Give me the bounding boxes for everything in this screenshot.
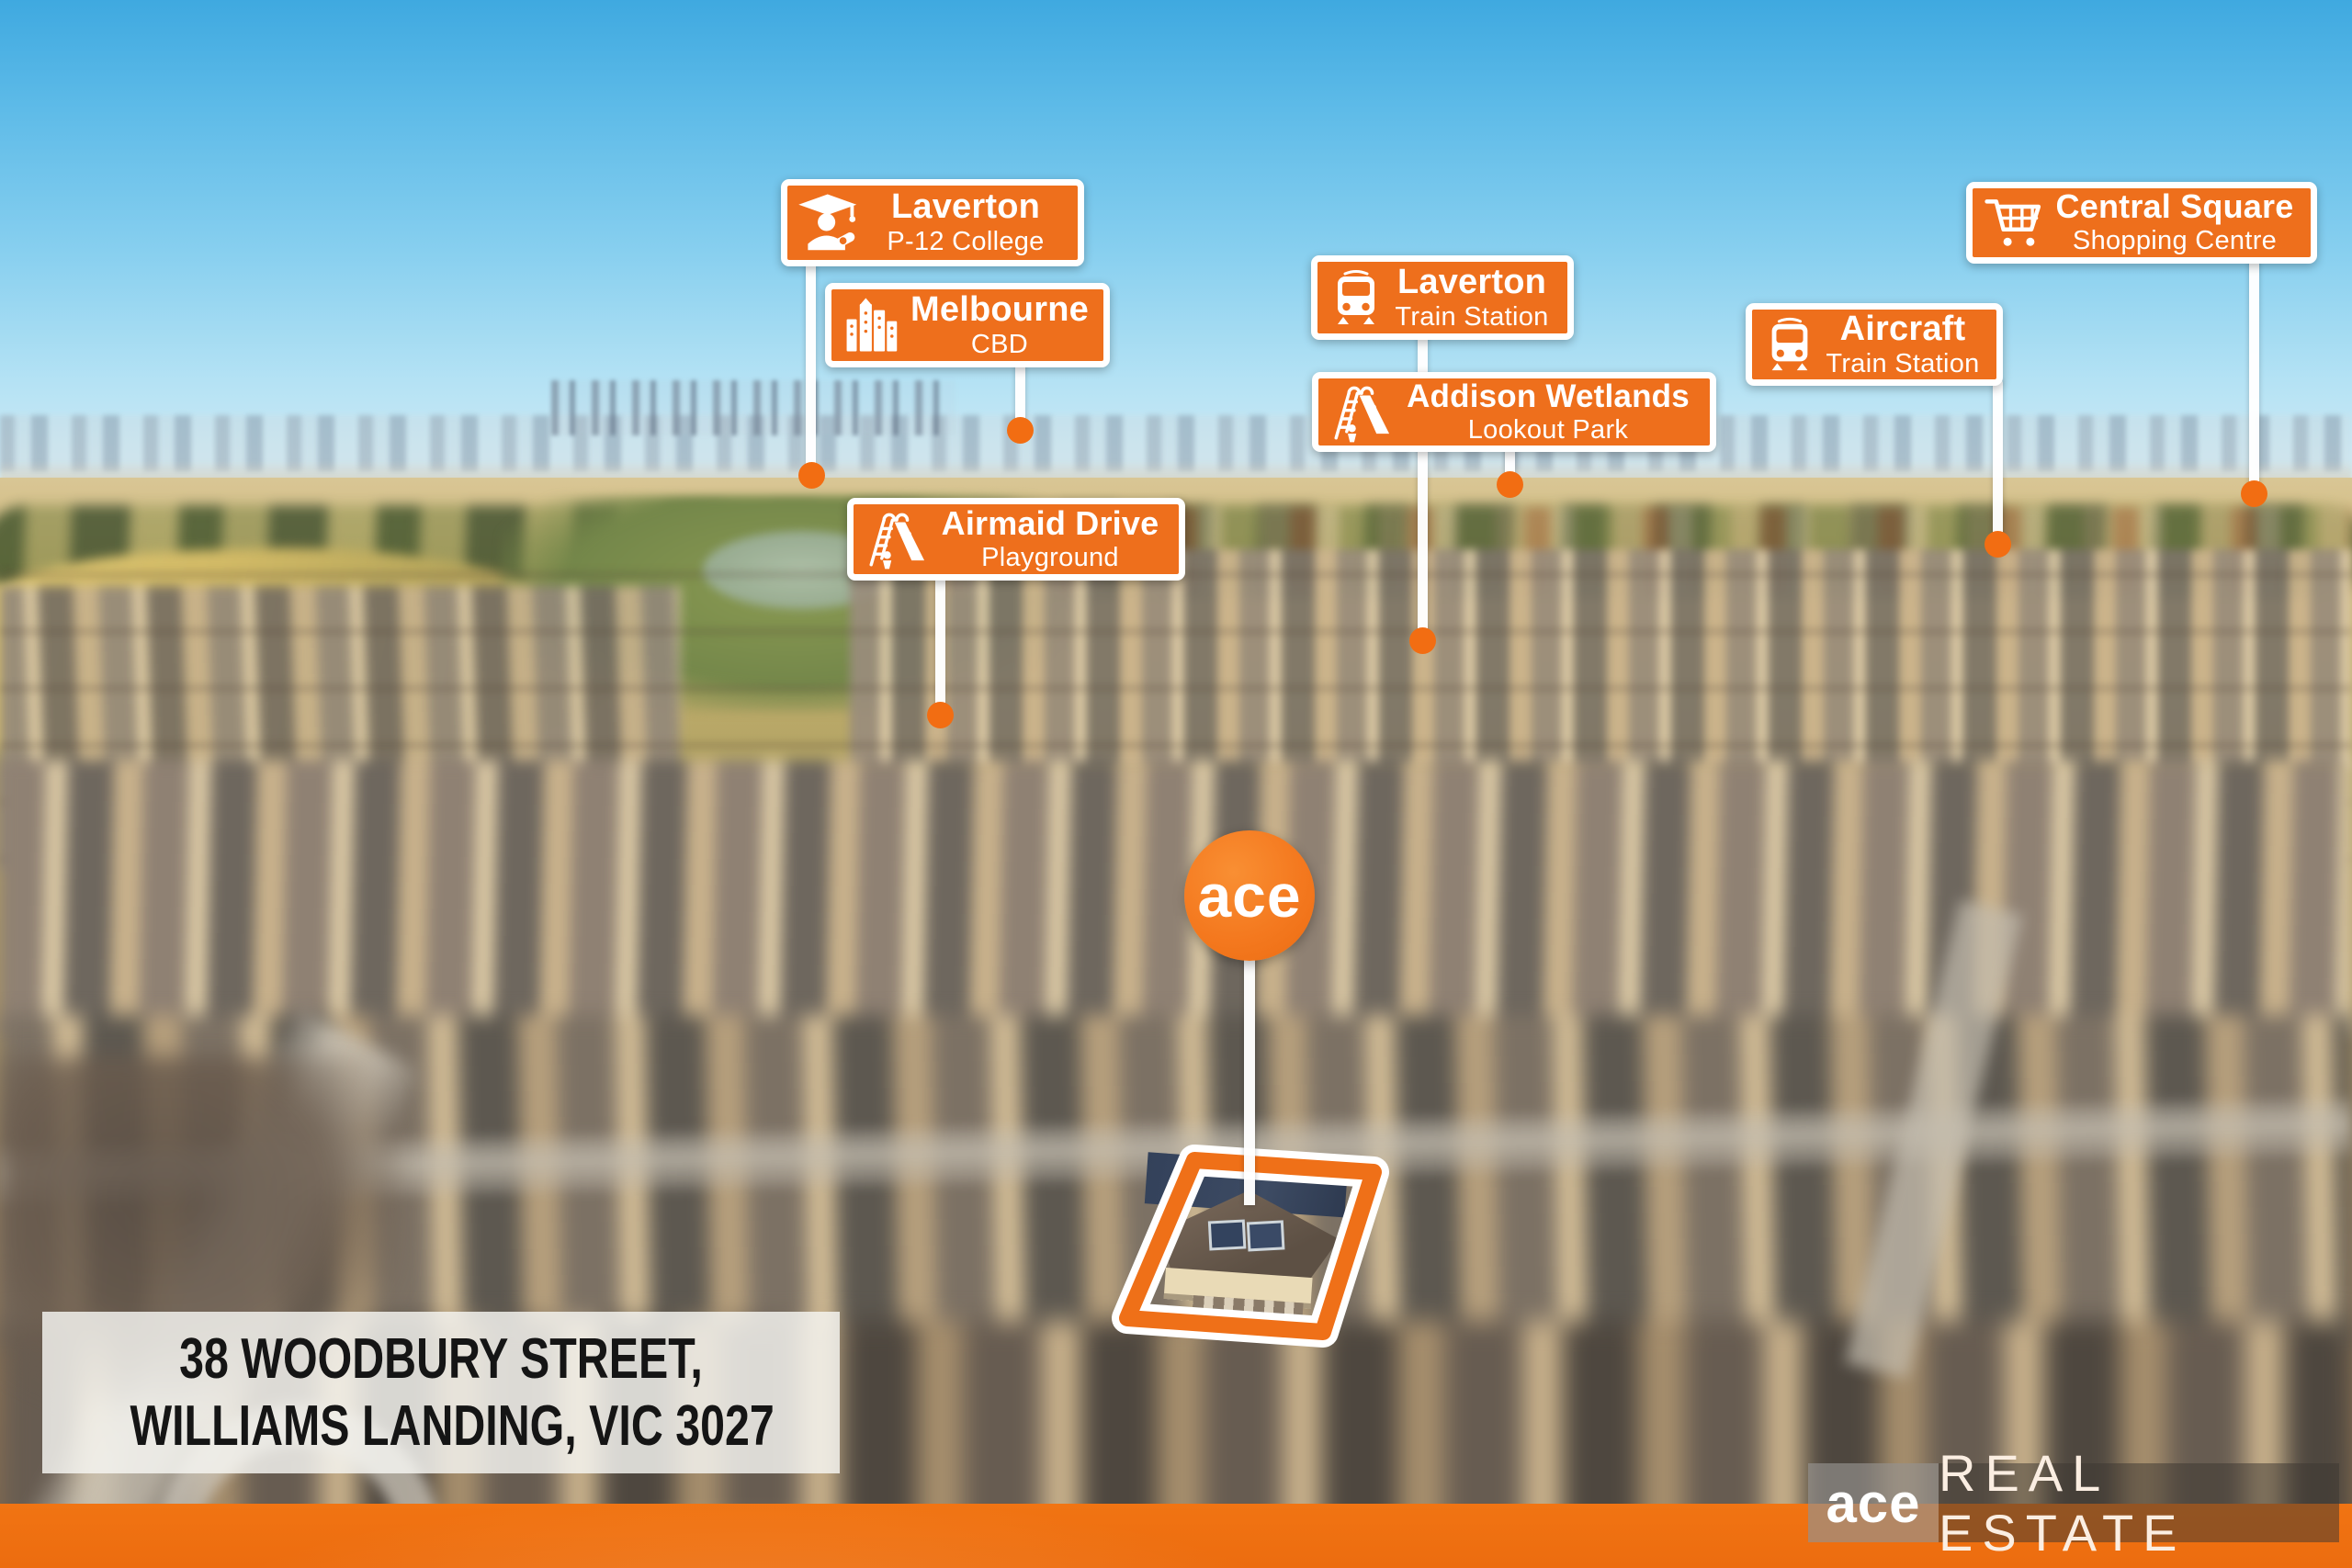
ace-marker-label: ace (1197, 861, 1301, 931)
ace-logo-box: ace (1808, 1463, 1939, 1542)
address-line-2: WILLIAMS LANDING, VIC 3027 (130, 1393, 752, 1460)
ace-real-estate-logo: ace REAL ESTATE (1808, 1463, 2339, 1542)
address-overlay: 38 WOODBURY STREET, WILLIAMS LANDING, VI… (42, 1312, 840, 1473)
marker-stem (1244, 955, 1255, 1205)
real-estate-wordmark: REAL ESTATE (1939, 1463, 2339, 1542)
aerial-marketing-image: Laverton P-12 College Melbourne (0, 0, 2352, 1568)
address-line-1: 38 WOODBURY STREET, (130, 1325, 752, 1393)
ace-logo-text: ace (1826, 1472, 1920, 1535)
ace-property-marker: ace (1184, 830, 1315, 961)
